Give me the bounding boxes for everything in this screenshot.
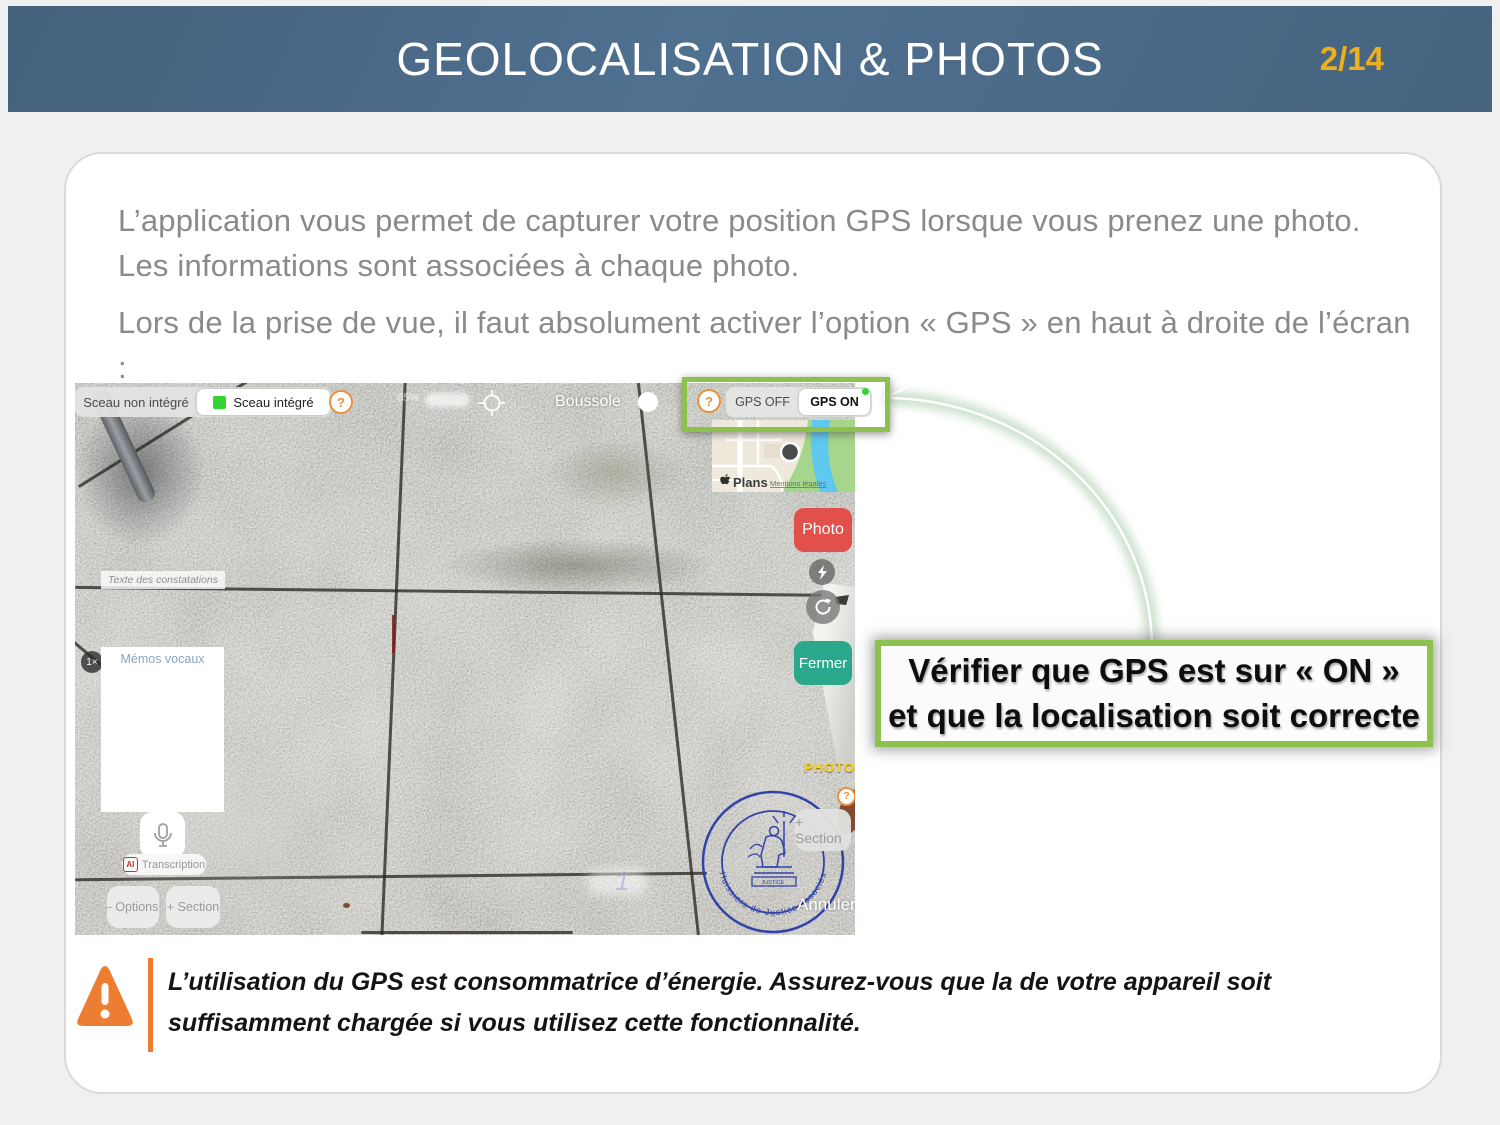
svg-text:Plans: Plans xyxy=(733,475,768,490)
seal-toggle[interactable]: Sceau non intégré Sceau intégré xyxy=(75,387,332,417)
warning-line-1: L’utilisation du GPS est consommatrice d… xyxy=(168,968,1271,996)
callout-arrow xyxy=(860,378,1180,663)
warning-line-2: suffisamment chargée si vous utilisez ce… xyxy=(168,1009,861,1037)
rust-streak xyxy=(392,615,395,653)
gps-active-dot xyxy=(862,388,869,395)
moss-stain xyxy=(545,438,685,508)
microphone-icon xyxy=(150,821,176,849)
help-icon[interactable]: ? xyxy=(329,390,353,414)
camera-flip-icon[interactable] xyxy=(806,590,840,624)
callout-line-1: Vérifier que GPS est sur « ON » xyxy=(908,649,1400,694)
flash-icon[interactable] xyxy=(809,559,835,585)
callout-line-2: et que la localisation soit correcte xyxy=(888,694,1420,739)
leaf-debris xyxy=(343,903,350,908)
warning-divider xyxy=(148,958,153,1052)
gps-on-option[interactable]: GPS ON xyxy=(799,389,870,415)
compass-label[interactable]: Boussole xyxy=(555,393,621,411)
seal-on-option[interactable]: Sceau intégré xyxy=(197,389,330,415)
map-legal-link[interactable]: Mentions légales xyxy=(770,479,827,488)
microphone-button[interactable] xyxy=(140,812,185,858)
focus-crosshair-icon xyxy=(479,390,505,416)
blurred-info-text: 85% xyxy=(397,392,419,404)
options-button[interactable]: - Options xyxy=(107,886,159,928)
blurred-blob xyxy=(587,869,647,895)
help-icon-small[interactable]: ? xyxy=(837,787,855,806)
annuler-button[interactable]: Annuler xyxy=(797,895,855,915)
add-section-button-right[interactable]: + Section xyxy=(795,809,851,851)
fermer-button[interactable]: Fermer xyxy=(794,641,852,685)
blurred-pill xyxy=(425,393,470,407)
moss-stain xyxy=(443,538,713,593)
ai-chip-icon: AI xyxy=(123,857,138,872)
page-title: GEOLOCALISATION & PHOTOS xyxy=(396,32,1103,86)
app-screenshot: Sceau non intégré Sceau intégré ? 85% Bo… xyxy=(75,383,855,935)
callout-box: Vérifier que GPS est sur « ON » et que l… xyxy=(875,640,1433,747)
transcription-label: Transcription xyxy=(142,859,205,871)
add-section-button-left[interactable]: + Section xyxy=(166,886,220,928)
paving-joint xyxy=(361,931,573,934)
slide-header: GEOLOCALISATION & PHOTOS 2/14 xyxy=(8,6,1492,112)
voice-memos-panel: Mémos vocaux xyxy=(101,647,224,812)
photo-mode-label[interactable]: PHOTO xyxy=(804,760,855,775)
voice-memos-title: Mémos vocaux xyxy=(101,652,224,666)
seal-off-option[interactable]: Sceau non intégré xyxy=(75,387,197,417)
green-square-icon xyxy=(213,396,226,409)
constat-text-field[interactable]: Texte des constatations xyxy=(101,571,225,589)
map-pin xyxy=(781,443,799,461)
seal-on-label: Sceau intégré xyxy=(233,395,313,410)
gps-toggle[interactable]: GPS OFF GPS ON xyxy=(726,387,872,417)
warning-text: L’utilisation du GPS est consommatrice d… xyxy=(168,962,1328,1044)
gps-off-option[interactable]: GPS OFF xyxy=(726,387,799,417)
photo-button[interactable]: Photo xyxy=(794,508,852,552)
warning-icon xyxy=(75,963,135,1033)
svg-text:JUSTICE: JUSTICE xyxy=(762,880,785,886)
help-icon-gps[interactable]: ? xyxy=(697,389,721,413)
intro-paragraph-1: L’application vous permet de capturer vo… xyxy=(118,198,1398,288)
white-circle-button[interactable] xyxy=(638,392,658,412)
page-number: 2/14 xyxy=(1320,40,1384,78)
transcription-button[interactable]: AI Transcription xyxy=(122,854,206,875)
zoom-badge[interactable]: 1× xyxy=(81,651,103,673)
